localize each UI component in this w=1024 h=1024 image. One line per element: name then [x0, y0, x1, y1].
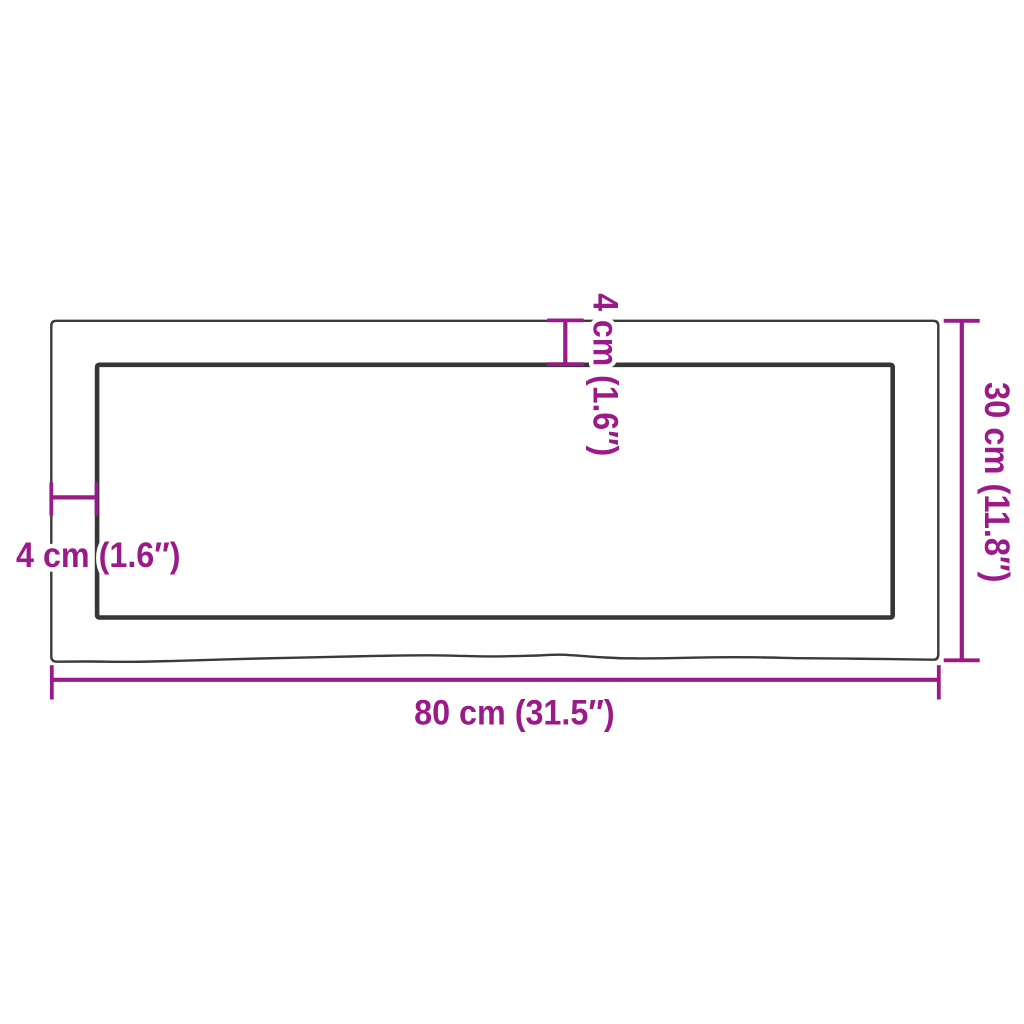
svg-text:30 cm (11.8″): 30 cm (11.8″) [977, 382, 1016, 583]
svg-text:4 cm (1.6″): 4 cm (1.6″) [16, 536, 181, 575]
svg-text:80 cm (31.5″): 80 cm (31.5″) [414, 694, 614, 733]
svg-text:4 cm (1.6″): 4 cm (1.6″) [586, 293, 625, 456]
